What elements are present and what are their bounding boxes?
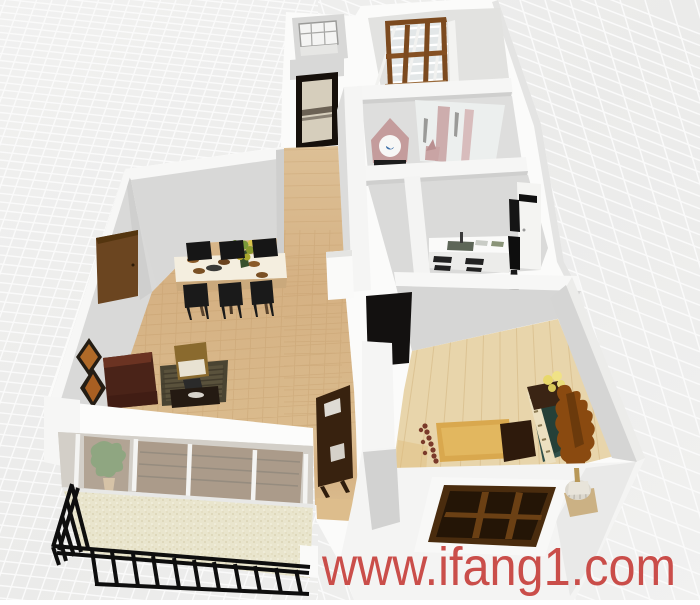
svg-text:www.ifang1.com: www.ifang1.com	[321, 537, 676, 597]
